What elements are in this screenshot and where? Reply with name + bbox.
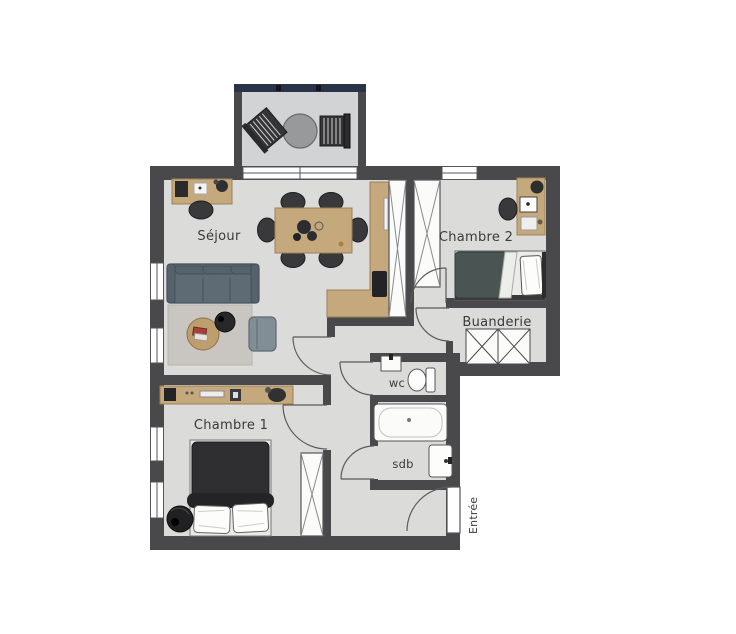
wall-outer-bottom (150, 536, 460, 550)
pouf (167, 506, 193, 532)
sideboard-item (186, 392, 189, 395)
side-table-decor (218, 316, 224, 322)
wall-sejour-door-stub (327, 326, 335, 337)
dryer (498, 329, 530, 364)
desk-dot (526, 202, 530, 206)
sideboard-item (191, 392, 194, 395)
buanderie-appliances (466, 329, 530, 364)
desk-papers (521, 217, 537, 230)
sideboard-item (233, 392, 238, 398)
railing-post (276, 85, 281, 91)
window (442, 167, 477, 180)
wardrobe (414, 180, 440, 287)
wall-kitchen-corridor (327, 317, 414, 326)
room-label-chambre2: Chambre 2 (439, 230, 513, 245)
sideboard-item (164, 388, 176, 401)
sofa-armrest (251, 264, 259, 303)
wc-sink-tap (389, 354, 393, 360)
table-decor (339, 242, 344, 247)
sink-drain (444, 459, 448, 463)
room-label-chambre1: Chambre 1 (194, 418, 268, 433)
sideboard-item (265, 387, 271, 393)
kitchen-appliance-handle (384, 198, 388, 230)
kitchen-tall-cabinet (389, 180, 406, 317)
side-table (215, 312, 235, 332)
coffee-table-books (192, 327, 209, 341)
room-label-sejour: Séjour (197, 229, 241, 244)
balcony-chair-right (320, 114, 350, 148)
entry-door-leaf (447, 487, 460, 533)
bed-pillow (232, 503, 268, 533)
room-label-entree: Entrée (467, 497, 480, 534)
dining-chair (258, 218, 277, 242)
bathtub-drain (407, 418, 411, 422)
balcony-railing (234, 84, 366, 92)
desk-decor (538, 220, 543, 225)
balcony-sliding-door (243, 167, 357, 179)
bed-double (187, 440, 274, 536)
sofa-cushion (175, 266, 205, 274)
room-label-buanderie: Buanderie (462, 315, 531, 330)
sideboard-item (200, 391, 224, 397)
sofa-armrest (167, 264, 175, 303)
room-label-wc: wc (389, 376, 405, 390)
room-label-sdb: sdb (392, 457, 413, 471)
table-plant (307, 231, 317, 241)
wall-sejour-chambre1 (150, 375, 331, 385)
bed-duvet (192, 442, 269, 498)
window (151, 427, 164, 461)
window (151, 263, 164, 300)
desk-dot (199, 187, 202, 190)
sofa-cushion (203, 266, 233, 274)
armchair (249, 317, 276, 351)
desk-plant (531, 181, 544, 194)
desk-chair (499, 198, 517, 220)
wall-outer-right-upper (546, 166, 560, 376)
balcony-side-wall (358, 92, 366, 166)
wall-chambre1-corridor (323, 450, 331, 536)
washing-machine (466, 329, 498, 364)
sofa (167, 264, 259, 303)
toilet-bowl (408, 369, 426, 391)
floor-plan-drawing: Séjour Chambre 2 Buanderie Chambre 1 wc … (0, 0, 736, 634)
kitchen-cooktop (372, 271, 387, 297)
sink-tap (448, 457, 452, 464)
desk-plant-leaf (214, 180, 219, 185)
wardrobe (301, 453, 323, 536)
desk-laptop (175, 181, 188, 197)
balcony-round-table (283, 114, 317, 148)
floor-plan-page: Séjour Chambre 2 Buanderie Chambre 1 wc … (0, 0, 736, 634)
desk-chair (189, 201, 213, 219)
bed-single (455, 251, 546, 300)
bathtub (374, 404, 447, 441)
table-plant (297, 220, 311, 234)
bed-headboard (542, 252, 546, 298)
toilet-tank (426, 368, 435, 392)
wall-chambre1-corridor (323, 375, 331, 405)
window (151, 328, 164, 363)
window (151, 482, 164, 518)
wall-sejour-chambre2 (406, 166, 414, 326)
wall-wc-sdb (370, 395, 448, 402)
bathroom-sink (429, 445, 452, 477)
bed-pillow (194, 505, 231, 533)
railing-post (316, 85, 321, 91)
balcony-side-wall (234, 92, 242, 166)
sideboard (160, 386, 293, 404)
table-plant (293, 233, 301, 241)
